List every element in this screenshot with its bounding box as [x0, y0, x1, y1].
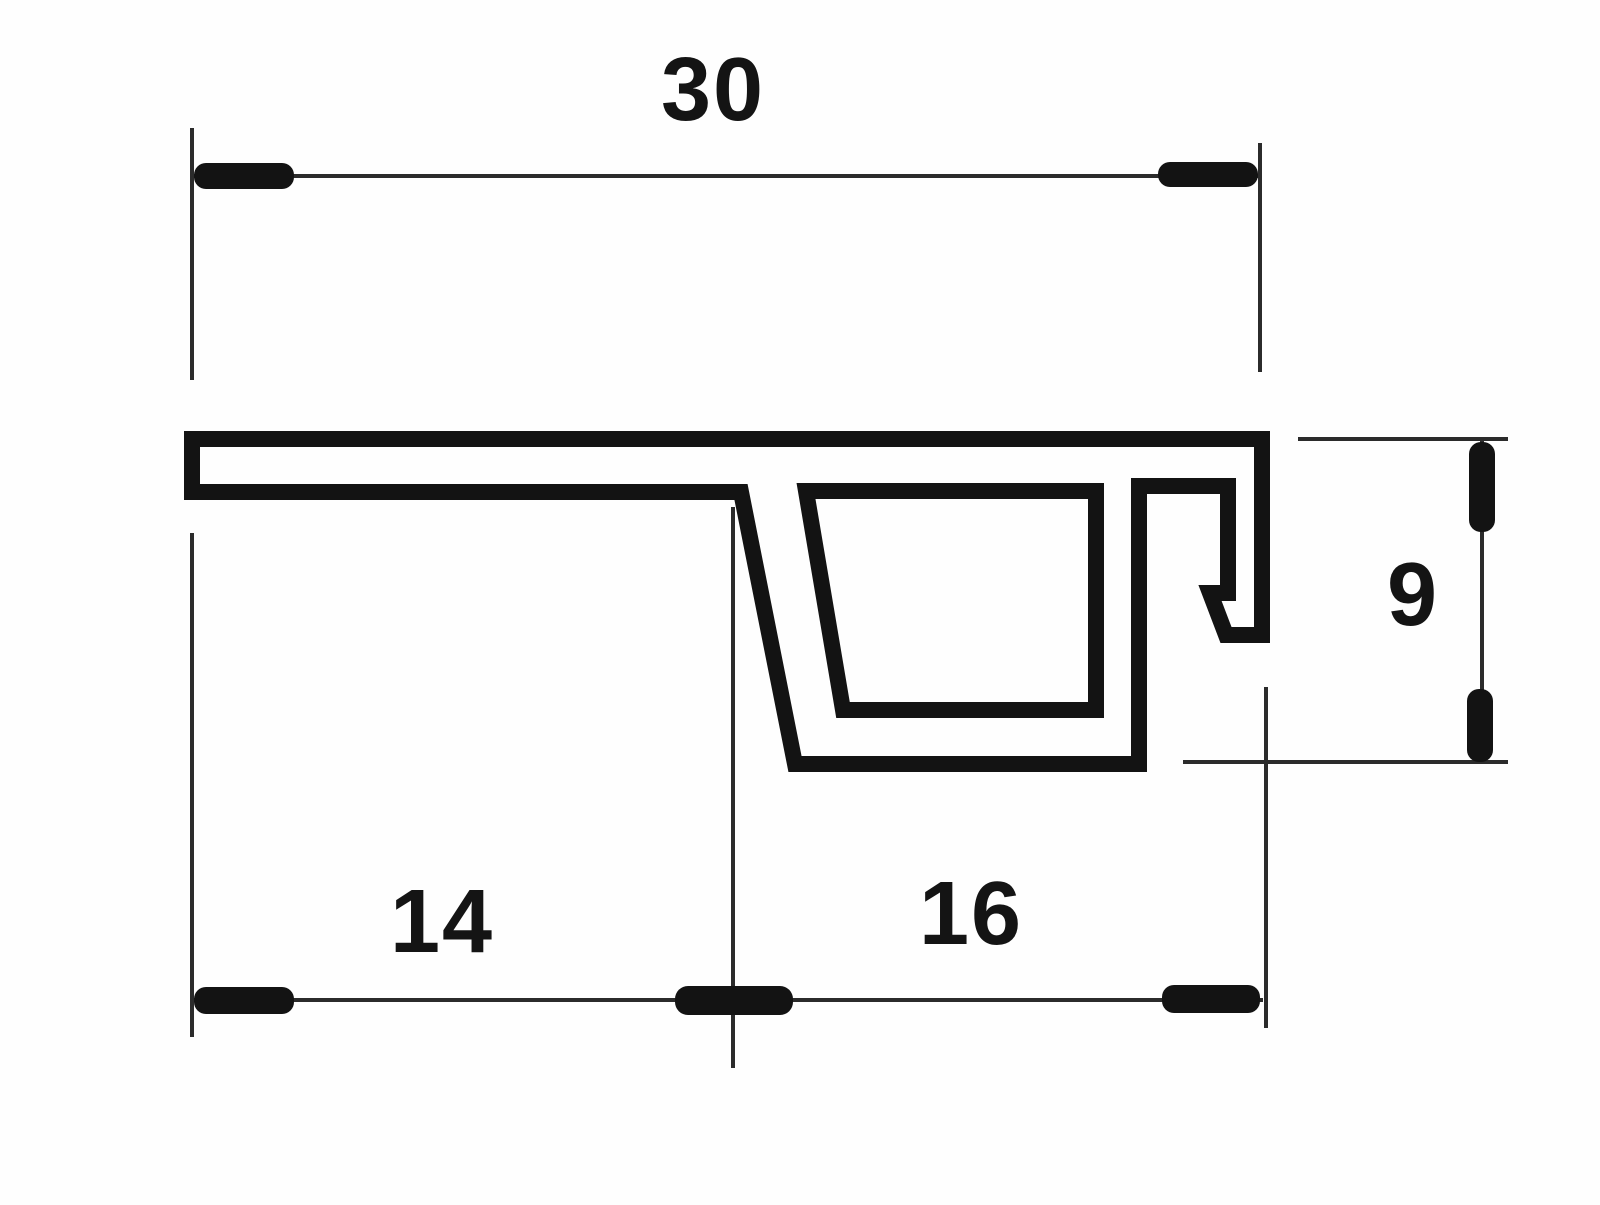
arrow-tick-bottom [1467, 689, 1493, 762]
dimension-value-right: 9 [1387, 545, 1439, 645]
chamber-outline [806, 491, 1096, 710]
arrow-tick-left [194, 987, 294, 1014]
arrow-tick-top [1469, 442, 1495, 532]
technical-drawing-canvas: 30 14 16 9 [0, 0, 1600, 1200]
dimension-bottom-14-16: 14 16 [192, 507, 1266, 1068]
drawing-page: 30 14 16 9 [0, 0, 1600, 1200]
dimension-value-top: 30 [661, 40, 765, 140]
dimension-top-30: 30 [192, 40, 1260, 380]
arrow-tick-right [1158, 162, 1258, 187]
dimension-value-bottom-left: 14 [390, 872, 494, 972]
arrow-tick-left [194, 163, 294, 189]
arrow-tick-middle [675, 986, 793, 1015]
arrow-tick-right [1162, 985, 1260, 1013]
dimension-value-bottom-right: 16 [919, 864, 1023, 964]
